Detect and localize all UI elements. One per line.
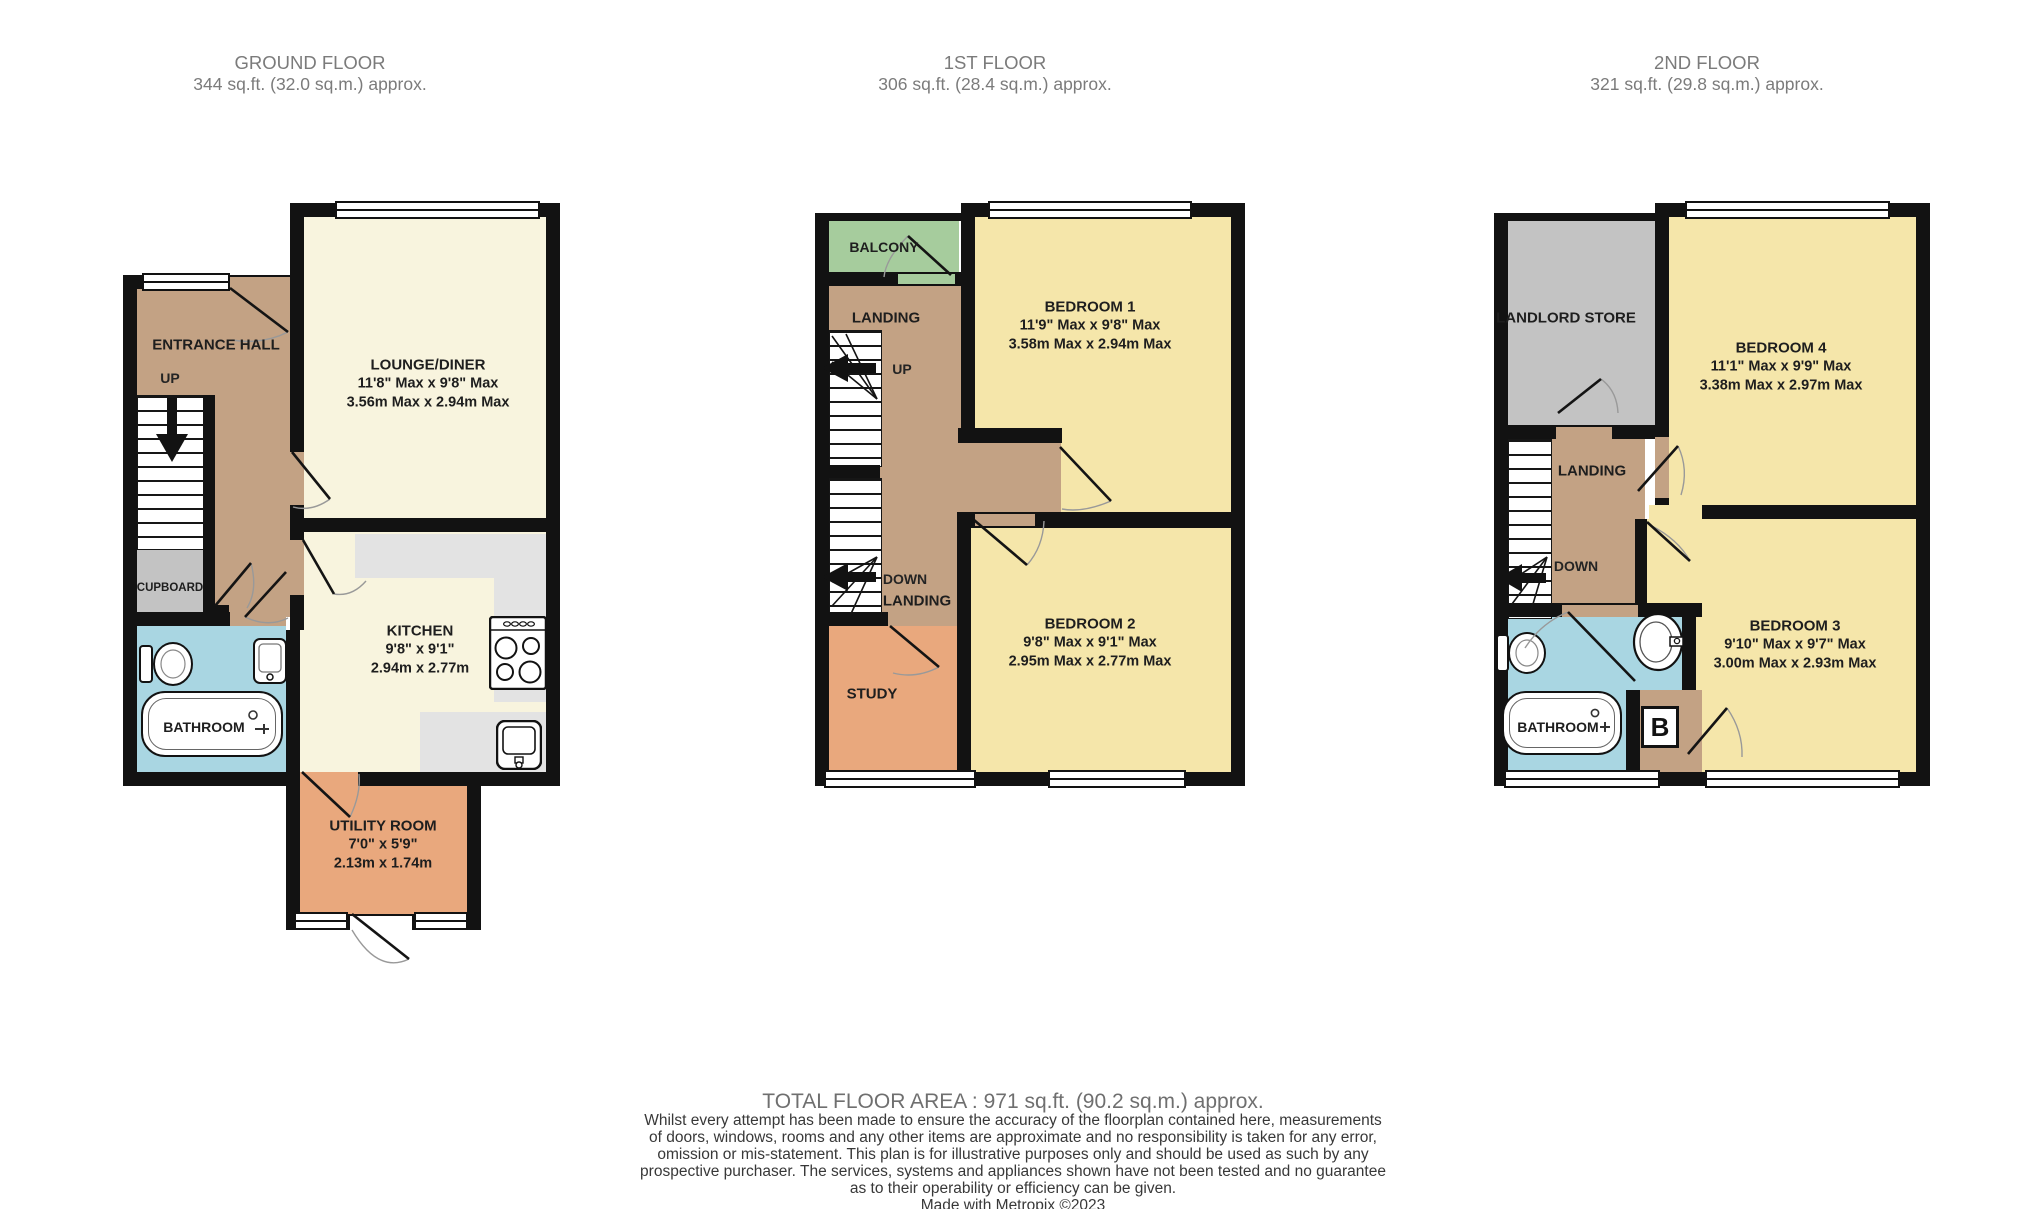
stairs-second	[1508, 439, 1552, 619]
door-gap	[975, 514, 1035, 526]
wall	[290, 203, 304, 452]
wall	[829, 465, 880, 478]
wall	[286, 786, 300, 930]
room-label-bathroom-ground: BATHROOM	[163, 719, 244, 735]
door-gap	[230, 277, 290, 289]
bath-taps-icon	[245, 707, 273, 745]
wall	[290, 505, 304, 540]
total-floor-area: TOTAL FLOOR AREA : 971 sq.ft. (90.2 sq.m…	[463, 1090, 1563, 1114]
door-gap	[1562, 605, 1638, 617]
wall	[467, 786, 481, 930]
disclaimer-text: Whilst every attempt has been made to en…	[463, 1112, 1563, 1197]
door-gap	[1655, 437, 1669, 498]
window	[1504, 770, 1660, 788]
wall	[815, 612, 888, 626]
toilet-icon	[1496, 630, 1546, 681]
room-label-landing-lower: LANDING	[883, 592, 951, 611]
room-label-utility: UTILITY ROOM 7'0" x 5'9" 2.13m x 1.74m	[329, 817, 436, 874]
wall	[1231, 203, 1245, 786]
wall	[961, 217, 975, 443]
ground-floor-title: GROUND FLOOR	[110, 52, 510, 74]
first-floor-header: 1ST FLOOR 306 sq.ft. (28.4 sq.m.) approx…	[795, 52, 1195, 95]
second-floor-header: 2ND FLOOR 321 sq.ft. (29.8 sq.m.) approx…	[1507, 52, 1907, 95]
stairs-ground	[137, 395, 205, 550]
window	[142, 273, 230, 291]
room-label-balcony: BALCONY	[849, 239, 918, 255]
wall	[957, 528, 971, 772]
wall	[958, 428, 1062, 443]
first-floor-area: 306 sq.ft. (28.4 sq.m.) approx.	[795, 74, 1195, 95]
room-label-study: STUDY	[847, 685, 898, 704]
toilet-icon	[139, 640, 195, 693]
window	[414, 912, 468, 930]
wall	[304, 518, 546, 532]
window	[1685, 201, 1890, 219]
door-gap	[290, 452, 304, 505]
stairs-up-label-first: UP	[892, 361, 911, 377]
window	[988, 201, 1192, 219]
wall	[203, 395, 215, 550]
stairs-down-label-first: DOWN	[883, 571, 927, 587]
window	[1048, 770, 1186, 788]
door-gap	[1556, 427, 1612, 439]
metropix-credit: Made with Metropix ©2023	[463, 1197, 1563, 1209]
door-gap	[350, 916, 412, 930]
window	[824, 770, 976, 788]
window	[294, 912, 348, 930]
room-label-bedroom1: BEDROOM 1 11'9" Max x 9'8" Max 3.58m Max…	[1009, 298, 1172, 355]
wall	[213, 605, 229, 625]
window	[1705, 770, 1900, 788]
room-label-landing-upper: LANDING	[852, 309, 920, 328]
room-landing-corridor	[961, 443, 1061, 512]
kitchen-counter-top	[355, 534, 546, 578]
wall	[815, 213, 961, 221]
wall	[286, 630, 300, 772]
door-gap	[888, 612, 940, 626]
room-label-kitchen: KITCHEN 9'8" x 9'1" 2.94m x 2.77m	[371, 622, 469, 679]
room-label-cupboard: CUPBOARD	[137, 582, 203, 594]
boiler-label: B	[1651, 712, 1670, 743]
room-label-bedroom2: BEDROOM 2 9'8" Max x 9'1" Max 2.95m Max …	[1009, 615, 1172, 672]
room-label-bathroom-second: BATHROOM	[1517, 719, 1598, 735]
room-label-lounge-diner: LOUNGE/DINER 11'8" Max x 9'8" Max 3.56m …	[347, 356, 510, 413]
door-gap	[290, 540, 304, 595]
stairs-up-label-ground: UP	[160, 370, 179, 386]
stairs-down-label-second: DOWN	[1554, 558, 1598, 574]
door-gap	[1649, 505, 1702, 519]
wall	[290, 595, 304, 630]
kitchen-sink-icon	[496, 720, 542, 775]
wall	[1635, 519, 1647, 603]
room-label-landlord-store: LANDLORD STORE	[1496, 309, 1636, 328]
round-sink-icon	[1632, 612, 1686, 677]
wall	[1494, 213, 1662, 221]
window	[335, 201, 540, 219]
stairs-first-down	[829, 478, 882, 619]
wall	[1626, 690, 1640, 772]
floorplan-canvas: GROUND FLOOR 344 sq.ft. (32.0 sq.m.) app…	[0, 0, 2025, 1209]
boiler-box: B	[1641, 706, 1679, 748]
door-gap	[300, 772, 358, 786]
second-floor-area: 321 sq.ft. (29.8 sq.m.) approx.	[1507, 74, 1907, 95]
wall	[1916, 203, 1930, 786]
second-floor-title: 2ND FLOOR	[1507, 52, 1907, 74]
first-floor-title: 1ST FLOOR	[795, 52, 1195, 74]
wall	[123, 275, 137, 772]
stairs-first-up	[829, 330, 882, 467]
door-gap	[230, 612, 286, 626]
sink-icon	[253, 638, 287, 689]
ground-floor-header: GROUND FLOOR 344 sq.ft. (32.0 sq.m.) app…	[110, 52, 510, 95]
wall	[815, 221, 829, 786]
door-gap	[898, 274, 955, 284]
room-label-bedroom4: BEDROOM 4 11'1" Max x 9'9" Max 3.38m Max…	[1700, 339, 1863, 396]
ground-floor-area: 344 sq.ft. (32.0 sq.m.) approx.	[110, 74, 510, 95]
room-label-bedroom3: BEDROOM 3 9'10" Max x 9'7" Max 3.00m Max…	[1714, 617, 1877, 674]
stove-icon	[489, 616, 547, 695]
room-label-landing-second: LANDING	[1558, 462, 1626, 481]
room-label-entrance-hall: ENTRANCE HALL	[152, 336, 280, 355]
wall	[546, 203, 560, 786]
